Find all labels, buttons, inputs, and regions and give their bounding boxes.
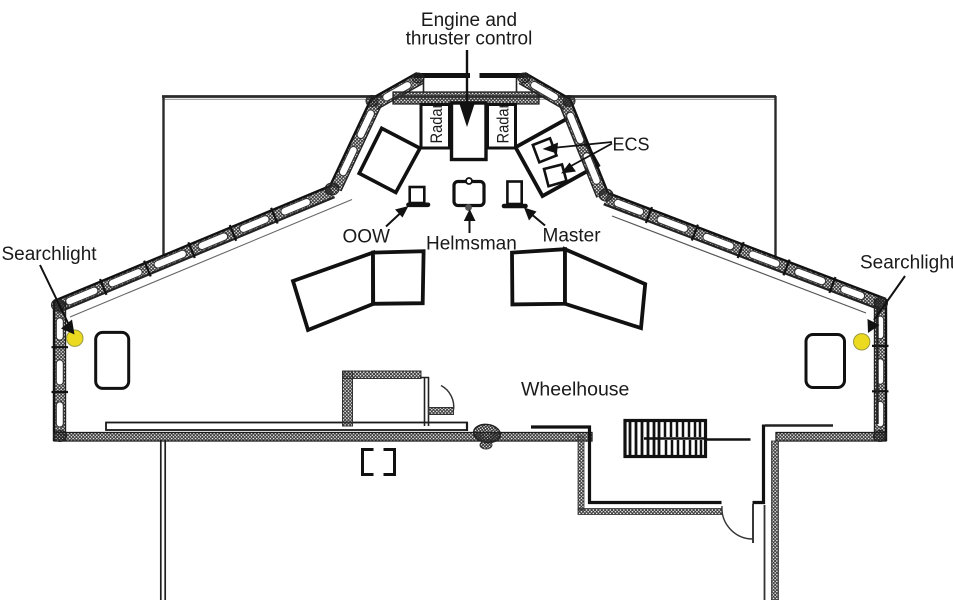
svg-text:Radar: Radar xyxy=(428,103,446,143)
svg-text:Master: Master xyxy=(543,226,602,247)
svg-text:Searchlight: Searchlight xyxy=(2,244,98,265)
svg-text:ECS: ECS xyxy=(613,135,650,155)
svg-text:OOW: OOW xyxy=(343,227,391,248)
svg-text:Radar: Radar xyxy=(495,103,513,143)
svg-text:Helmsman: Helmsman xyxy=(426,234,517,255)
svg-text:Searchlight: Searchlight xyxy=(860,253,953,274)
svg-text:thruster control: thruster control xyxy=(406,29,533,50)
svg-text:Wheelhouse: Wheelhouse xyxy=(521,379,629,401)
